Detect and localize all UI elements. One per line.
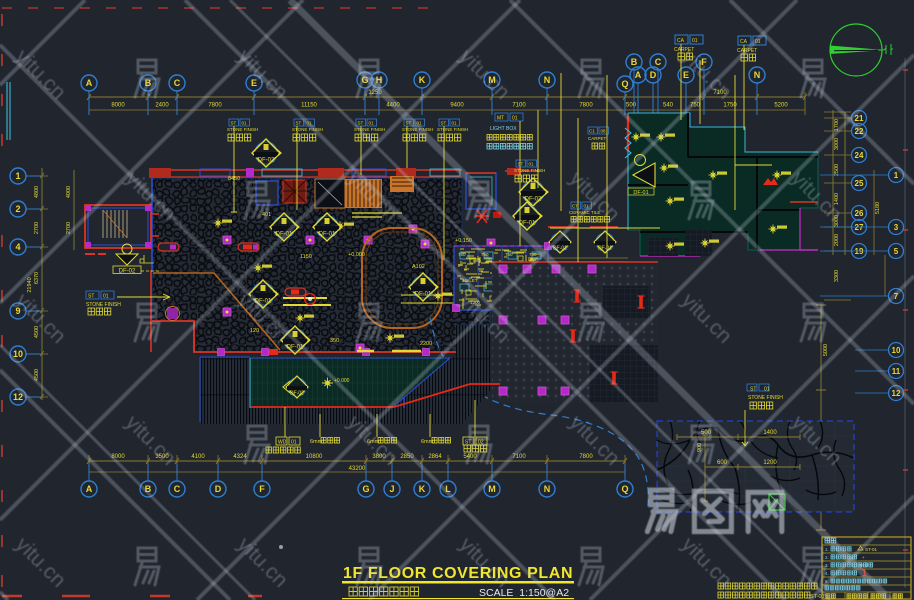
svg-text:350: 350 xyxy=(330,338,339,344)
svg-text:7800: 7800 xyxy=(579,103,593,109)
svg-text:ST: ST xyxy=(88,294,94,300)
svg-text:08: 08 xyxy=(601,129,607,134)
svg-text:5180: 5180 xyxy=(875,202,881,214)
svg-text:2.: 2. xyxy=(825,555,829,560)
svg-text:01: 01 xyxy=(692,38,698,44)
svg-text:01: 01 xyxy=(452,121,458,126)
svg-text:01: 01 xyxy=(103,294,109,300)
svg-text:1150: 1150 xyxy=(300,254,312,260)
svg-text:5000: 5000 xyxy=(823,344,829,356)
svg-text:CA: CA xyxy=(677,38,685,44)
svg-text:8450: 8450 xyxy=(228,176,240,182)
svg-text:43200: 43200 xyxy=(349,466,366,472)
svg-text:750: 750 xyxy=(529,252,537,257)
svg-text:ST: ST xyxy=(231,121,237,126)
svg-text:1: 1 xyxy=(15,171,20,181)
svg-text:2500: 2500 xyxy=(834,164,840,176)
svg-text:ST: ST xyxy=(441,121,447,126)
svg-text:01: 01 xyxy=(369,121,375,126)
svg-text:4100: 4100 xyxy=(191,454,205,460)
svg-text:24: 24 xyxy=(855,151,864,160)
svg-text:STONE FINISH: STONE FINISH xyxy=(227,127,258,132)
svg-text:19: 19 xyxy=(855,247,864,256)
svg-text:STONE FINISH: STONE FINISH xyxy=(514,168,545,173)
svg-text:3000: 3000 xyxy=(834,138,840,150)
svg-text:2: 2 xyxy=(15,204,20,214)
svg-text:5200: 5200 xyxy=(774,103,788,109)
svg-text:D: D xyxy=(650,70,657,80)
svg-text:4: 4 xyxy=(15,242,20,252)
svg-text:+: + xyxy=(862,555,865,560)
svg-text:3300: 3300 xyxy=(834,270,840,282)
svg-text:540: 540 xyxy=(663,103,674,109)
svg-text:DF-01: DF-01 xyxy=(519,221,536,227)
svg-text:26: 26 xyxy=(855,209,864,218)
svg-text:11150: 11150 xyxy=(301,103,317,109)
svg-text:A: A xyxy=(86,78,93,88)
svg-text:25: 25 xyxy=(855,179,864,188)
svg-text:5: 5 xyxy=(894,247,899,256)
svg-text:CT: CT xyxy=(572,204,578,209)
svg-text:Q: Q xyxy=(621,484,628,494)
svg-text:3: 3 xyxy=(894,223,899,232)
svg-text:1400: 1400 xyxy=(763,430,777,436)
svg-text:C: C xyxy=(174,484,181,494)
svg-text:SCALE 1:150@A2: SCALE 1:150@A2 xyxy=(479,587,569,599)
svg-text:6370: 6370 xyxy=(34,272,40,284)
svg-text:DF-02: DF-02 xyxy=(119,269,136,275)
svg-text:N: N xyxy=(754,70,761,80)
svg-text:C1: C1 xyxy=(589,129,595,134)
svg-text:M: M xyxy=(488,484,496,494)
svg-text:4.: 4. xyxy=(825,571,829,576)
svg-text:2400: 2400 xyxy=(155,103,169,109)
svg-text:STONE FINISH: STONE FINISH xyxy=(86,302,121,308)
svg-text:1: 1 xyxy=(894,171,899,180)
svg-text:8000: 8000 xyxy=(111,103,125,109)
svg-text:ST: ST xyxy=(296,121,302,126)
svg-text:500: 500 xyxy=(626,103,637,109)
svg-text:4000: 4000 xyxy=(66,186,72,198)
svg-text:DF-01: DF-01 xyxy=(633,190,648,196)
svg-text:2000: 2000 xyxy=(834,234,840,246)
svg-text:N: N xyxy=(544,75,551,85)
svg-text:7800: 7800 xyxy=(579,454,593,460)
svg-text:1.: 1. xyxy=(825,547,829,552)
svg-text:1200: 1200 xyxy=(763,460,777,466)
svg-text:A: A xyxy=(635,70,642,80)
svg-text:DF-01: DF-01 xyxy=(598,246,612,252)
svg-text:01: 01 xyxy=(291,440,297,446)
svg-text:K: K xyxy=(419,75,426,85)
svg-text:750: 750 xyxy=(505,252,513,257)
svg-text:LIGHT BOX: LIGHT BOX xyxy=(490,126,517,132)
svg-text:A: A xyxy=(86,484,93,494)
svg-text:D: D xyxy=(215,484,222,494)
svg-text:Q: Q xyxy=(621,79,628,89)
svg-text:DF-02: DF-02 xyxy=(290,391,304,397)
svg-text:ST: ST xyxy=(358,121,364,126)
svg-text:ST: ST xyxy=(518,162,524,167)
svg-text:N: N xyxy=(544,484,551,494)
svg-text:STONE FINISH: STONE FINISH xyxy=(437,127,468,132)
svg-text:CA: CA xyxy=(740,39,748,45)
svg-text:DF-01: DF-01 xyxy=(415,292,432,298)
svg-text:B: B xyxy=(631,57,638,67)
svg-text:J: J xyxy=(389,484,394,494)
svg-text:A102: A102 xyxy=(412,264,425,270)
svg-text:C: C xyxy=(655,57,662,67)
svg-text:2200: 2200 xyxy=(420,341,432,347)
svg-text:7800: 7800 xyxy=(208,103,222,109)
svg-text:WD: WD xyxy=(278,440,287,446)
svg-text:10: 10 xyxy=(892,346,901,355)
svg-text:DF-02: DF-02 xyxy=(258,158,275,164)
svg-text:C: C xyxy=(174,78,181,88)
svg-text:K: K xyxy=(419,484,426,494)
svg-text:27: 27 xyxy=(855,223,864,232)
svg-text:+0.000: +0.000 xyxy=(348,252,365,258)
svg-text:ST: ST xyxy=(750,387,756,393)
svg-text:2700: 2700 xyxy=(34,222,40,234)
svg-text:7100: 7100 xyxy=(512,103,526,109)
svg-text:ST-01: ST-01 xyxy=(865,547,878,552)
svg-text:DF-01: DF-01 xyxy=(319,232,336,238)
svg-text:9400: 9400 xyxy=(450,103,464,109)
svg-text:F: F xyxy=(259,484,265,494)
svg-text:MT: MT xyxy=(497,116,504,122)
svg-text:10800: 10800 xyxy=(306,454,323,460)
svg-text:01: 01 xyxy=(529,162,535,167)
svg-text:2864: 2864 xyxy=(428,454,442,460)
svg-text:G: G xyxy=(362,484,369,494)
svg-text:01: 01 xyxy=(764,387,770,393)
svg-text:DF-01: DF-01 xyxy=(553,246,567,252)
svg-text:CARPET: CARPET xyxy=(588,136,607,141)
svg-text:4800: 4800 xyxy=(34,186,40,198)
svg-text:750: 750 xyxy=(458,252,466,257)
svg-text:01: 01 xyxy=(512,116,518,122)
svg-text:STONE FINISH: STONE FINISH xyxy=(748,395,783,401)
svg-text:11: 11 xyxy=(892,367,901,376)
svg-text:01: 01 xyxy=(242,121,248,126)
